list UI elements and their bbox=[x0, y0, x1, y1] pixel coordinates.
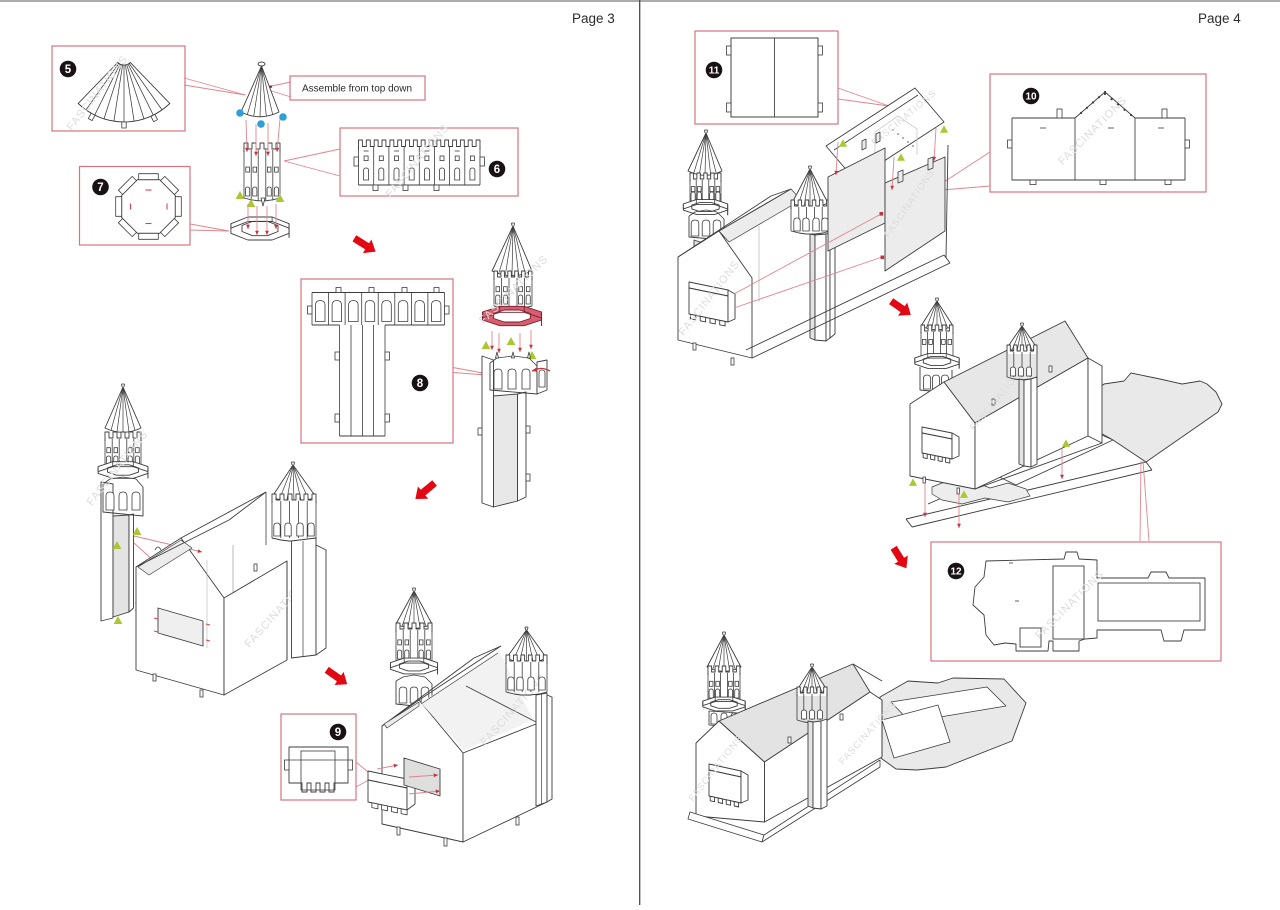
svg-text:6: 6 bbox=[494, 164, 500, 176]
svg-text:Page 3: Page 3 bbox=[572, 11, 615, 26]
svg-text:10: 10 bbox=[1025, 92, 1037, 103]
svg-text:9: 9 bbox=[335, 727, 341, 739]
svg-text:Assemble from top down: Assemble from top down bbox=[302, 84, 412, 95]
svg-text:Page 4: Page 4 bbox=[1198, 11, 1241, 26]
svg-text:12: 12 bbox=[950, 567, 962, 578]
svg-text:5: 5 bbox=[65, 64, 72, 76]
svg-text:11: 11 bbox=[709, 66, 720, 77]
svg-text:8: 8 bbox=[417, 378, 424, 390]
svg-text:7: 7 bbox=[97, 182, 103, 194]
